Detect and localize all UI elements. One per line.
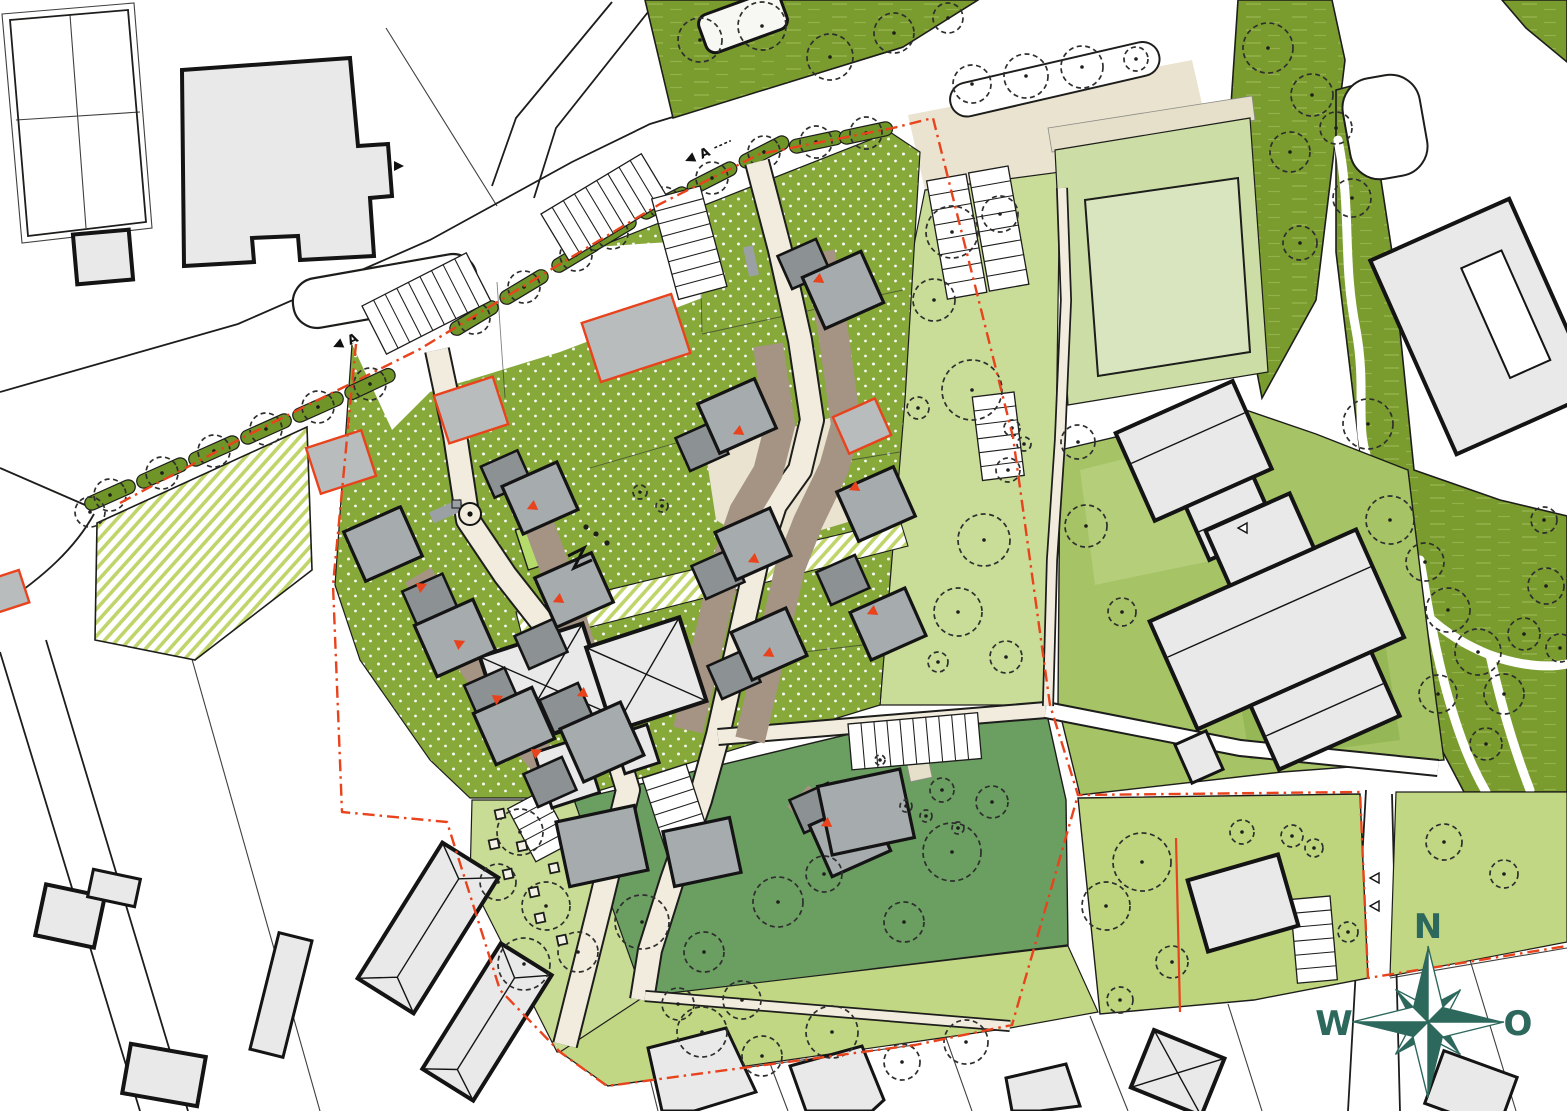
parking-row [1290,896,1337,983]
play-equipment-icon [557,935,568,946]
planned-house [663,818,741,887]
play-equipment-icon [503,869,514,880]
compass-west-label: W [1315,1004,1353,1044]
compass-south-label: S [1416,1105,1441,1111]
section-label: A [697,145,712,163]
entrance-marker-icon [1370,901,1379,911]
site-plan-page: A A N W O S [0,0,1567,1111]
sports-field [1085,178,1250,376]
hip-roof-building [1131,1030,1225,1111]
compass-north-label: N [1414,907,1442,947]
building [1006,1064,1080,1111]
building [182,58,392,266]
building [122,1044,206,1106]
play-equipment-icon [535,913,546,924]
planned-house [818,769,915,855]
play-equipment-icon [549,863,560,874]
play-equipment-icon [517,841,528,852]
compass-east-label: O [1504,1004,1533,1044]
play-equipment-icon [529,887,540,898]
building [73,230,133,285]
play-equipment-icon [495,809,506,820]
building [1425,1051,1517,1111]
marker-icon [394,161,404,171]
entrance-marker-icon [1370,873,1379,883]
reserved-plot [0,570,29,614]
east-meadow [1390,792,1567,976]
planned-house [556,805,648,886]
building [250,933,312,1058]
play-equipment-icon [489,839,500,850]
site-plan-map: A A N W O S [0,0,1567,1111]
